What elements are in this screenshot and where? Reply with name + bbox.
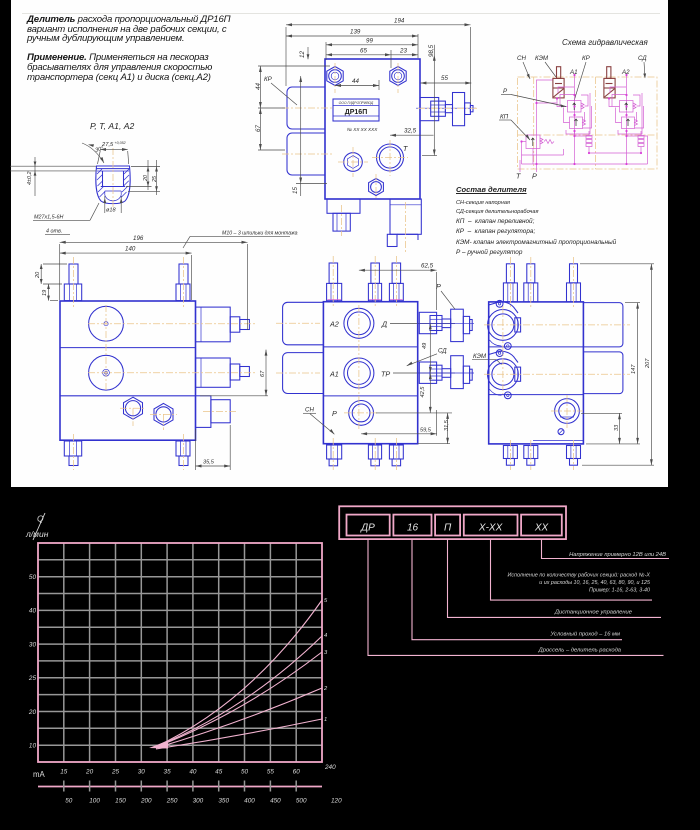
svg-text:Д: Д [381, 320, 387, 329]
svg-text:4 отв.: 4 отв. [46, 229, 62, 235]
svg-text:ДР16П: ДР16П [345, 109, 367, 116]
svg-text:35,5: 35,5 [203, 459, 215, 465]
svg-text:Пример: 1-16, 2-63, 3-40: Пример: 1-16, 2-63, 3-40 [589, 588, 650, 594]
svg-text:№ ХХ ХХ ХХХ: № ХХ ХХ ХХХ [347, 127, 378, 132]
svg-text:67: 67 [255, 125, 262, 132]
svg-text:500: 500 [296, 798, 307, 805]
svg-text:КЭМ: КЭМ [473, 353, 487, 360]
svg-text:12: 12 [299, 51, 306, 58]
svg-text:147: 147 [631, 364, 637, 374]
svg-text:99: 99 [366, 38, 373, 45]
svg-text:49: 49 [422, 343, 428, 349]
svg-text:55: 55 [267, 769, 275, 776]
svg-text:200: 200 [140, 798, 152, 805]
svg-text:50: 50 [29, 574, 37, 581]
svg-text:1: 1 [324, 717, 327, 723]
svg-text:3: 3 [324, 650, 328, 656]
svg-text:150: 150 [115, 798, 126, 805]
svg-text:40: 40 [29, 608, 37, 615]
svg-text:25: 25 [152, 175, 158, 183]
svg-text:40: 40 [189, 769, 197, 776]
svg-text:П: П [444, 523, 452, 534]
svg-text:Напряжение примерно 12В или 24: Напряжение примерно 12В или 24В [569, 552, 666, 558]
svg-text:15: 15 [60, 769, 68, 776]
svg-text:Р: Р [332, 409, 337, 418]
svg-text:20: 20 [85, 769, 94, 776]
svg-text:10: 10 [29, 743, 37, 750]
svg-text:Схема гидравлическая: Схема гидравлическая [562, 38, 649, 47]
svg-text:42,5: 42,5 [420, 386, 426, 398]
svg-text:194: 194 [394, 18, 405, 25]
svg-text:300: 300 [193, 798, 204, 805]
svg-text:КП: КП [500, 114, 509, 121]
svg-text:44: 44 [255, 83, 262, 90]
svg-text:25: 25 [28, 675, 37, 682]
svg-text:196: 196 [133, 235, 144, 242]
svg-text:Дроссель – делитель расхода: Дроссель – делитель расхода [538, 648, 622, 654]
svg-text:33: 33 [614, 424, 620, 431]
svg-text:ТР: ТР [381, 369, 390, 378]
svg-text:350: 350 [218, 798, 229, 805]
svg-text:4: 4 [324, 633, 327, 639]
svg-text:240: 240 [324, 764, 336, 771]
svg-text:ø18: ø18 [106, 208, 117, 214]
svg-text:23: 23 [399, 48, 407, 55]
svg-text:35: 35 [164, 769, 172, 776]
svg-text:30: 30 [29, 641, 37, 648]
svg-text:62,5: 62,5 [421, 263, 434, 270]
svg-text:А1: А1 [329, 369, 339, 378]
svg-text:25: 25 [111, 769, 120, 776]
svg-text:СД: СД [638, 55, 647, 62]
svg-text:44: 44 [352, 78, 359, 85]
svg-text:СН: СН [305, 407, 314, 414]
svg-text:59,5: 59,5 [420, 427, 432, 433]
svg-text:98,5: 98,5 [428, 44, 435, 57]
svg-text:Т: Т [516, 172, 521, 181]
svg-text:КР: КР [582, 55, 591, 62]
svg-text:60: 60 [293, 769, 301, 776]
svg-text:450: 450 [270, 798, 281, 805]
svg-text:КЭМ: КЭМ [535, 55, 549, 62]
svg-text:31,5: 31,5 [444, 419, 450, 431]
svg-text:5: 5 [324, 598, 328, 604]
svg-text:20: 20 [35, 271, 41, 279]
svg-text:и их расходы 10, 16, 25, 40, 6: и их расходы 10, 16, 25, 40, 63, 80, 90,… [539, 580, 651, 586]
svg-text:50: 50 [65, 798, 73, 805]
svg-text:30: 30 [138, 769, 146, 776]
svg-text:250: 250 [166, 798, 178, 805]
svg-text:140: 140 [125, 246, 136, 253]
svg-text:Исполнение по количеству рабоч: Исполнение по количеству рабочих секций:… [507, 572, 650, 579]
svg-text:15: 15 [292, 187, 299, 194]
svg-text:+0,052: +0,052 [115, 141, 126, 145]
svg-text:19: 19 [42, 290, 48, 296]
svg-text:50: 50 [241, 769, 249, 776]
svg-text:120: 120 [331, 798, 342, 805]
svg-text:М27х1,5-6Н: М27х1,5-6Н [34, 215, 63, 221]
svg-text:Р: Р [532, 172, 537, 181]
svg-text:65: 65 [360, 48, 367, 55]
svg-text:45: 45 [215, 769, 223, 776]
svg-text:Условный проход – 16 мм: Условный проход – 16 мм [549, 631, 620, 638]
svg-text:А1: А1 [569, 69, 578, 76]
svg-text:Х-ХХ: Х-ХХ [478, 523, 503, 534]
svg-text:СН: СН [517, 55, 526, 62]
svg-text:Р, Т, А1, А2: Р, Т, А1, А2 [90, 121, 134, 131]
svg-text:Р: Р [503, 88, 508, 95]
svg-text:Т: Т [403, 144, 408, 153]
svg-text:ДР: ДР [360, 523, 375, 534]
svg-text:55: 55 [441, 75, 448, 82]
svg-text:ХХ: ХХ [534, 523, 549, 534]
svg-text:Дистанционное управление: Дистанционное управление [554, 610, 633, 616]
svg-text:67: 67 [260, 370, 266, 377]
svg-text:20: 20 [28, 709, 37, 716]
svg-text:20: 20 [143, 175, 149, 182]
svg-text:СД: СД [438, 347, 447, 354]
svg-text:2: 2 [323, 686, 328, 692]
svg-text:М10 – 3 шпильки для монтажа: М10 – 3 шпильки для монтажа [222, 231, 298, 237]
svg-text:А2: А2 [329, 320, 339, 329]
svg-text:ООО ГИДРОПРИВОД: ООО ГИДРОПРИВОД [339, 101, 374, 105]
svg-text:16: 16 [407, 523, 419, 534]
svg-text:32,5: 32,5 [404, 128, 417, 135]
svg-text:КР: КР [264, 76, 273, 83]
svg-text:4±0,2: 4±0,2 [27, 172, 33, 185]
svg-text:mA: mA [33, 770, 45, 779]
svg-text:139: 139 [350, 29, 361, 36]
svg-text:100: 100 [89, 798, 100, 805]
svg-text:207: 207 [645, 358, 651, 369]
svg-text:400: 400 [244, 798, 255, 805]
